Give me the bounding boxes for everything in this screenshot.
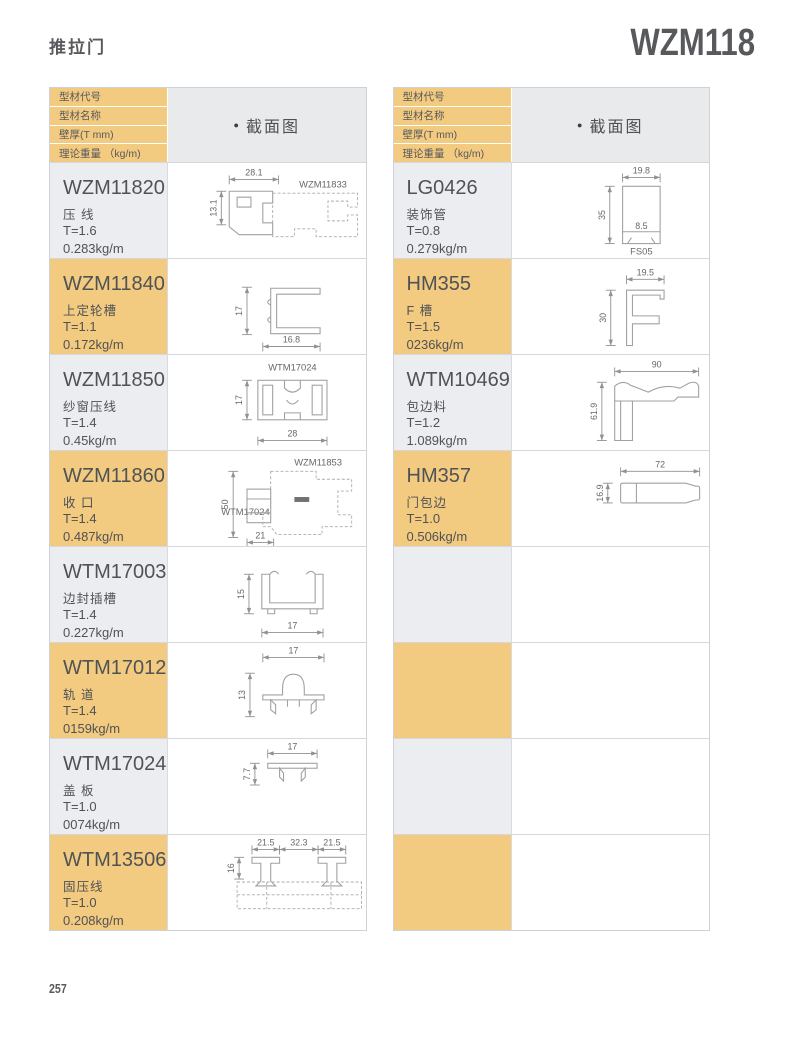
profile-weight: 0159kg/m (63, 721, 161, 736)
cross-section-svg: 1716.8 (168, 259, 366, 354)
cross-section-diagram: 7216.9 (512, 451, 710, 546)
table-row: WTM17024 盖 板 T=1.0 0074kg/m 177.7 (50, 738, 366, 834)
header-label-name: 型材名称 (50, 107, 167, 125)
cross-section-diagram (512, 739, 710, 834)
profile-thickness: T=1.4 (63, 415, 161, 430)
dim-label: 17 (234, 395, 244, 405)
table-row: WZM11850 纱窗压线 T=1.4 0.45kg/m WTM17024172… (50, 354, 366, 450)
page-title: 推拉门 (49, 33, 106, 62)
cross-section-diagram: 28.1WZM1183313.1 (168, 163, 366, 258)
cross-section-diagram (512, 835, 710, 930)
profile-code: HM355 (407, 273, 505, 296)
profile-thickness: T=1.4 (63, 511, 161, 526)
profile-thickness: T=1.5 (407, 319, 505, 334)
dim-label: 28 (287, 429, 297, 439)
profile-code: WZM11840 (63, 273, 161, 296)
cross-section-diagram: 21.532.321.516 (168, 835, 366, 930)
cross-section-svg: 28.1WZM1183313.1 (168, 163, 366, 258)
table-row (394, 642, 710, 738)
profile-code: LG0426 (407, 177, 505, 200)
profile-info-cell (394, 547, 512, 642)
profile-info-cell (394, 835, 512, 930)
page-number: 257 (49, 982, 67, 996)
profile-table-right: 型材代号 型材名称 壁厚(T mm) 理论重量 （kg/m) ● 截面图 LG0… (393, 87, 711, 931)
table-header-right: 型材代号 型材名称 壁厚(T mm) 理论重量 （kg/m) ● 截面图 (394, 88, 710, 162)
profile-code: WTM17003 (63, 561, 161, 584)
table-row (394, 738, 710, 834)
profile-code: WZM11850 (63, 369, 161, 392)
cross-section-svg: 19.8358.5FS05 (512, 163, 710, 258)
cross-section-diagram: 1716.8 (168, 259, 366, 354)
profile-thickness: T=1.1 (63, 319, 161, 334)
profile-weight: 0.279kg/m (407, 241, 505, 256)
profile-name: 边封插槽 (63, 588, 161, 607)
profile-thickness: T=1.4 (63, 607, 161, 622)
dim-label: 17 (288, 645, 298, 655)
table-row: WTM10469 包边料 T=1.2 1.089kg/m 9061.9 (394, 354, 710, 450)
cross-section-svg: 7216.9 (512, 451, 710, 546)
related-part-label: FS05 (630, 246, 652, 256)
cross-section-diagram (512, 643, 710, 738)
dim-label: 8.5 (635, 221, 647, 231)
rows-right: LG0426 装饰管 T=0.8 0.279kg/m 19.8358.5FS05… (394, 162, 710, 930)
cross-section-diagram: 177.7 (168, 739, 366, 834)
profile-info-cell: WZM11840 上定轮槽 T=1.1 0.172kg/m (50, 259, 168, 354)
profile-thickness: T=0.8 (407, 223, 505, 238)
profile-info-cell: LG0426 装饰管 T=0.8 0.279kg/m (394, 163, 512, 258)
related-part-label: WZM11833 (299, 179, 347, 189)
bullet-icon: ● (577, 120, 582, 130)
profile-info-cell: HM355 F 槽 T=1.5 0236kg/m (394, 259, 512, 354)
table-row (394, 834, 710, 930)
section-diagram-header: ● 截面图 (512, 88, 710, 162)
header-label-thickness: 壁厚(T mm) (394, 126, 511, 144)
table-row: LG0426 装饰管 T=0.8 0.279kg/m 19.8358.5FS05 (394, 162, 710, 258)
dim-label: 19.5 (636, 267, 653, 277)
profile-thickness: T=1.0 (407, 511, 505, 526)
tables-area: 型材代号 型材名称 壁厚(T mm) 理论重量 （kg/m) ● 截面图 WZM… (49, 87, 710, 931)
dim-label: 72 (655, 459, 665, 469)
table-row: WZM11820 压 线 T=1.6 0.283kg/m 28.1WZM1183… (50, 162, 366, 258)
dim-label: 90 (651, 359, 661, 369)
dim-label: 17 (234, 306, 244, 316)
page-header: 推拉门 WZM118 (0, 0, 800, 62)
profile-weight: 1.089kg/m (407, 433, 505, 448)
dim-label: 32.3 (290, 837, 307, 847)
cross-section-diagram: WTM170241728 (168, 355, 366, 450)
cross-section-svg: 177.7 (168, 739, 366, 834)
profile-thickness: T=1.2 (407, 415, 505, 430)
profile-thickness: T=1.0 (63, 799, 161, 814)
profile-weight: 0.283kg/m (63, 241, 161, 256)
profile-name: 装饰管 (407, 204, 505, 223)
section-title: 截面图 (246, 113, 300, 137)
cross-section-svg: 19.530 (512, 259, 710, 354)
header-label-thickness: 壁厚(T mm) (50, 126, 167, 144)
dim-label: 21.5 (257, 837, 274, 847)
related-part-label: WTM17024 (221, 507, 269, 517)
profile-info-cell: WTM17024 盖 板 T=1.0 0074kg/m (50, 739, 168, 834)
cross-section-svg: 1713 (168, 643, 366, 738)
profile-info-cell: WZM11850 纱窗压线 T=1.4 0.45kg/m (50, 355, 168, 450)
header-label-name: 型材名称 (394, 107, 511, 125)
table-row: HM357 门包边 T=1.0 0.506kg/m 7216.9 (394, 450, 710, 546)
related-part-label: WTM17024 (268, 362, 316, 372)
dim-label: 61.9 (588, 403, 598, 420)
dim-label: 16.8 (283, 335, 300, 345)
profile-thickness: T=1.0 (63, 895, 161, 910)
profile-code: WZM11820 (63, 177, 161, 200)
profile-weight: 0.172kg/m (63, 337, 161, 352)
profile-name: 轨 道 (63, 684, 161, 703)
cross-section-diagram: 9061.9 (512, 355, 710, 450)
cross-section-diagram: WZM1185350WTM1702421 (168, 451, 366, 546)
cross-section-svg: 1517 (168, 547, 366, 642)
table-row: WTM17003 边封插槽 T=1.4 0.227kg/m 1517 (50, 546, 366, 642)
cross-section-svg: 21.532.321.516 (168, 835, 366, 930)
table-row: WTM13506 固压线 T=1.0 0.208kg/m 21.532.321.… (50, 834, 366, 930)
table-header-left: 型材代号 型材名称 壁厚(T mm) 理论重量 （kg/m) ● 截面图 (50, 88, 366, 162)
dim-label: 17 (287, 741, 297, 751)
model-code: WZM118 (630, 24, 755, 62)
profile-info-cell: WTM17012 轨 道 T=1.4 0159kg/m (50, 643, 168, 738)
dim-label: 28.1 (245, 167, 262, 177)
dim-label: 16.9 (594, 484, 604, 501)
profile-weight: 0.487kg/m (63, 529, 161, 544)
profile-code: WTM13506 (63, 849, 161, 872)
header-label-code: 型材代号 (394, 88, 511, 106)
header-label-column: 型材代号 型材名称 壁厚(T mm) 理论重量 （kg/m) (394, 88, 512, 162)
profile-weight: 0.506kg/m (407, 529, 505, 544)
section-diagram-header: ● 截面图 (168, 88, 366, 162)
profile-name: 纱窗压线 (63, 396, 161, 415)
dim-label: 17 (287, 621, 297, 631)
cross-section-diagram: 1713 (168, 643, 366, 738)
dim-label: 16 (226, 863, 236, 873)
profile-info-cell: WTM13506 固压线 T=1.0 0.208kg/m (50, 835, 168, 930)
profile-info-cell (394, 643, 512, 738)
profile-code: HM357 (407, 465, 505, 488)
cross-section-svg: 9061.9 (512, 355, 710, 450)
profile-info-cell: WZM11860 收 口 T=1.4 0.487kg/m (50, 451, 168, 546)
dim-label: 30 (597, 313, 607, 323)
section-title: 截面图 (589, 113, 643, 137)
profile-weight: 0236kg/m (407, 337, 505, 352)
profile-thickness: T=1.6 (63, 223, 161, 238)
dim-label: 21 (255, 530, 265, 540)
dim-label: 13 (237, 690, 247, 700)
cross-section-diagram: 1517 (168, 547, 366, 642)
profile-weight: 0074kg/m (63, 817, 161, 832)
profile-weight: 0.227kg/m (63, 625, 161, 640)
table-row: WZM11840 上定轮槽 T=1.1 0.172kg/m 1716.8 (50, 258, 366, 354)
cross-section-diagram (512, 547, 710, 642)
cross-section-diagram: 19.8358.5FS05 (512, 163, 710, 258)
table-row (394, 546, 710, 642)
related-part-label: WZM11853 (294, 457, 342, 467)
header-label-weight: 理论重量 （kg/m) (394, 144, 511, 162)
profile-info-cell (394, 739, 512, 834)
profile-name: 门包边 (407, 492, 505, 511)
dim-label: 13.1 (208, 199, 218, 216)
dim-label: 19.8 (632, 165, 649, 175)
profile-info-cell: WZM11820 压 线 T=1.6 0.283kg/m (50, 163, 168, 258)
cross-section-diagram: 19.530 (512, 259, 710, 354)
profile-thickness: T=1.4 (63, 703, 161, 718)
header-label-weight: 理论重量 （kg/m) (50, 144, 167, 162)
profile-name: 固压线 (63, 876, 161, 895)
profile-name: 收 口 (63, 492, 161, 511)
profile-code: WZM11860 (63, 465, 161, 488)
table-row: WTM17012 轨 道 T=1.4 0159kg/m 1713 (50, 642, 366, 738)
profile-name: 包边料 (407, 396, 505, 415)
table-row: WZM11860 收 口 T=1.4 0.487kg/m WZM1185350W… (50, 450, 366, 546)
cross-section-svg: WZM1185350WTM1702421 (168, 451, 366, 546)
profile-name: 盖 板 (63, 780, 161, 799)
table-row: HM355 F 槽 T=1.5 0236kg/m 19.530 (394, 258, 710, 354)
profile-weight: 0.208kg/m (63, 913, 161, 928)
profile-table-left: 型材代号 型材名称 壁厚(T mm) 理论重量 （kg/m) ● 截面图 WZM… (49, 87, 367, 931)
profile-name: F 槽 (407, 300, 505, 319)
cross-section-svg: WTM170241728 (168, 355, 366, 450)
bullet-icon: ● (234, 120, 239, 130)
profile-code: WTM17024 (63, 753, 161, 776)
profile-info-cell: HM357 门包边 T=1.0 0.506kg/m (394, 451, 512, 546)
rows-left: WZM11820 压 线 T=1.6 0.283kg/m 28.1WZM1183… (50, 162, 366, 930)
header-label-code: 型材代号 (50, 88, 167, 106)
profile-info-cell: WTM17003 边封插槽 T=1.4 0.227kg/m (50, 547, 168, 642)
profile-weight: 0.45kg/m (63, 433, 161, 448)
dim-label: 15 (236, 589, 246, 599)
profile-code: WTM17012 (63, 657, 161, 680)
profile-name: 上定轮槽 (63, 300, 161, 319)
dim-label: 7.7 (242, 768, 252, 780)
profile-info-cell: WTM10469 包边料 T=1.2 1.089kg/m (394, 355, 512, 450)
profile-name: 压 线 (63, 204, 161, 223)
profile-code: WTM10469 (407, 369, 505, 392)
header-label-column: 型材代号 型材名称 壁厚(T mm) 理论重量 （kg/m) (50, 88, 168, 162)
dim-label: 21.5 (323, 837, 340, 847)
dim-label: 35 (596, 210, 606, 220)
